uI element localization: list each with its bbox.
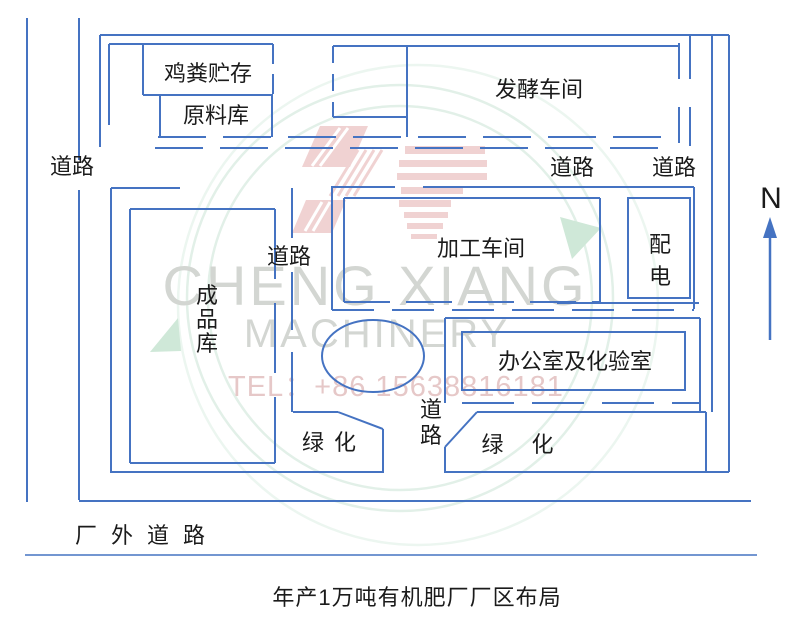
- watermark-logo-stripe-bar: [401, 187, 463, 194]
- watermark-logo-diagonal: [354, 150, 382, 196]
- watermark-arrowhead: [150, 318, 181, 352]
- label-road-east: 道路: [652, 155, 696, 180]
- label-raw-material-warehouse: 原料库: [183, 103, 249, 128]
- label-road-mid-east: 道路: [550, 155, 594, 180]
- label-road-west: 道路: [50, 154, 94, 179]
- label-outside-road: 厂外道路: [75, 523, 219, 548]
- label-power-distribution: 电: [649, 264, 671, 289]
- diagram-caption: 年产1万吨有机肥厂厂区布局: [17, 580, 800, 612]
- label-office-and-lab: 办公室及化验室: [498, 349, 652, 374]
- watermark-logo-stripe-bar: [411, 234, 437, 239]
- north-label: N: [760, 182, 782, 215]
- label-fermentation-workshop: 发酵车间: [495, 77, 583, 102]
- label-road-center: 路: [420, 423, 442, 448]
- label-chicken-manure-storage: 鸡粪贮存: [164, 61, 252, 86]
- watermark-logo-stripe-bar: [397, 173, 487, 180]
- plant-layout-stage: CHENG XIANGMACHINERYTEL：+86 15638816181鸡…: [0, 0, 800, 620]
- compass-north-arrow: [763, 217, 777, 340]
- watermark-brand-line1: CHENG XIANG: [162, 254, 587, 317]
- watermark-arrowhead: [560, 217, 601, 259]
- label-processing-workshop: 加工车间: [437, 236, 525, 261]
- label-finished-product-warehouse: 库: [196, 331, 218, 356]
- green-east-slope: [445, 412, 477, 447]
- watermark-logo-stripe-bar: [399, 200, 451, 207]
- watermark-logo-stripe-bar: [407, 223, 443, 229]
- watermark-logo-stripe-bar: [399, 160, 487, 167]
- green-west-slope: [338, 412, 383, 429]
- north-arrow-head: [763, 217, 777, 238]
- label-finished-product-warehouse: 成: [196, 283, 218, 308]
- label-road-center: 道: [420, 397, 442, 422]
- label-green-area-east: 绿 化: [481, 432, 564, 457]
- watermark-tel: TEL：+86 15638816181: [228, 371, 564, 403]
- plant-layout-diagram: CHENG XIANGMACHINERYTEL：+86 15638816181鸡…: [0, 0, 800, 620]
- label-finished-product-warehouse: 品: [196, 307, 218, 332]
- watermark-logo-stripe-bar: [404, 212, 448, 218]
- label-green-area-west: 绿 化: [302, 430, 358, 455]
- label-road-mid-west: 道路: [267, 244, 311, 269]
- label-power-distribution: 配: [649, 232, 671, 257]
